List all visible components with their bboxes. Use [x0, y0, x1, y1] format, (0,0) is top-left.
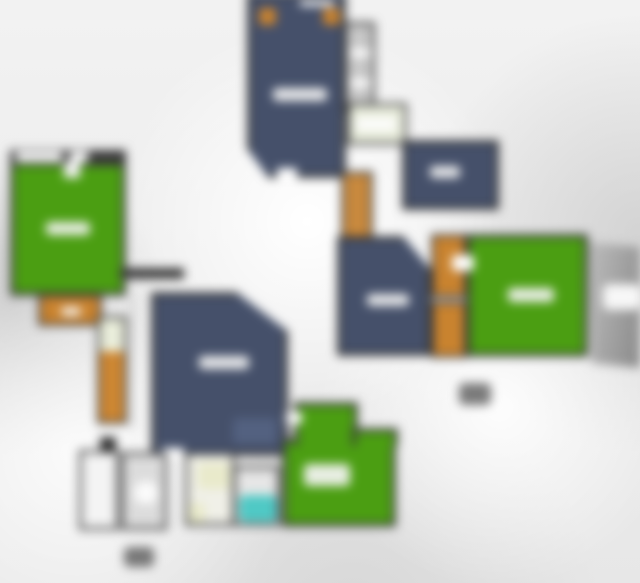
toilet-room — [121, 452, 167, 530]
orange-deck — [38, 294, 102, 326]
wash-room — [185, 452, 235, 526]
room-navy-center — [151, 292, 288, 456]
pillow-right — [323, 8, 340, 25]
room-green-bottom-bump — [294, 402, 358, 446]
wall-segment — [120, 268, 184, 279]
room-label-blob — [199, 356, 249, 369]
room-bedroom-middle — [337, 236, 431, 356]
window-gap — [16, 152, 62, 162]
utility-room — [79, 450, 119, 530]
room-label-blob — [508, 288, 554, 302]
room-label-blob — [304, 464, 350, 486]
room-bedroom-northeast — [402, 140, 499, 210]
room-label-blob — [273, 88, 327, 101]
pillow-left — [259, 8, 276, 25]
floor-plan-image — [0, 0, 640, 583]
room-green-bottom-step — [352, 428, 398, 446]
furniture-patch — [233, 418, 277, 444]
room-label-blob — [46, 222, 90, 235]
stairs-lower — [97, 316, 127, 424]
bathtub — [239, 495, 277, 522]
sink — [189, 503, 205, 523]
window-gap — [70, 152, 88, 162]
deck-notch — [603, 284, 640, 310]
window-gap — [300, 0, 334, 6]
closet-b — [431, 301, 467, 358]
door-gap — [64, 162, 80, 178]
door-blob — [452, 255, 474, 271]
room-green-right — [466, 234, 588, 357]
toilet — [134, 481, 158, 504]
door-gap — [277, 168, 297, 178]
room-bedroom-top — [247, 0, 346, 178]
room-small-bath — [347, 103, 407, 145]
room-label-blob — [367, 294, 409, 306]
wall-line — [130, 296, 134, 428]
shelf-bar — [350, 49, 371, 57]
shelf-bar — [350, 79, 371, 87]
heater-box — [100, 437, 116, 452]
room-label-blob — [430, 166, 460, 178]
upper-floor-marker — [459, 383, 491, 405]
blurred-plan-layer — [0, 0, 640, 583]
wash-counter — [198, 463, 230, 489]
closet-strip — [344, 22, 375, 113]
deck-label-blob — [61, 307, 81, 316]
bath-room — [233, 466, 280, 526]
lower-floor-marker — [124, 547, 154, 567]
door-blob — [286, 412, 302, 424]
stairs-upper — [341, 171, 373, 239]
bath-fixture — [356, 118, 396, 130]
